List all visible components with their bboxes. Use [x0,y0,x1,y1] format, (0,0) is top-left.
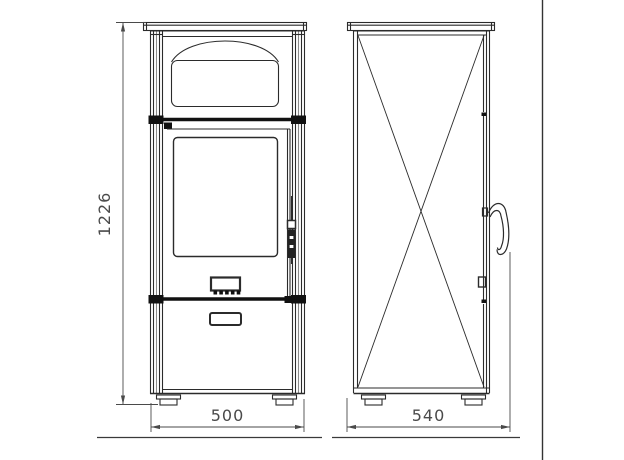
depth-dimension-label: 540 [412,406,446,425]
width-dimension: 500 [151,399,304,432]
side-view [348,23,509,406]
dimensions: 1226 500 540 [95,23,510,433]
arch-window [172,41,279,107]
side-feet [362,395,486,405]
front-view [144,23,307,406]
front-top-lid [144,23,307,31]
fire-door [167,129,290,297]
door-glass-window [174,138,278,257]
technical-drawing-page: 1226 500 540 [0,0,624,460]
ash-drawer [150,313,305,394]
width-dimension-label: 500 [211,406,245,425]
cross-brace [358,36,484,388]
front-lower-divider [149,295,307,304]
door-latch [479,277,486,287]
front-upper-divider [149,116,307,130]
front-left-pillar [151,31,163,395]
drawer-handle [210,313,241,325]
side-base [354,388,490,394]
height-dimension-label: 1226 [95,192,114,237]
air-vent [211,278,240,295]
stove-technical-drawing: 1226 500 540 [0,0,624,460]
height-dimension: 1226 [95,23,158,405]
front-feet [157,395,297,405]
side-top-lid [348,23,495,31]
front-door-handle [288,196,296,264]
front-right-pillar [293,31,305,395]
